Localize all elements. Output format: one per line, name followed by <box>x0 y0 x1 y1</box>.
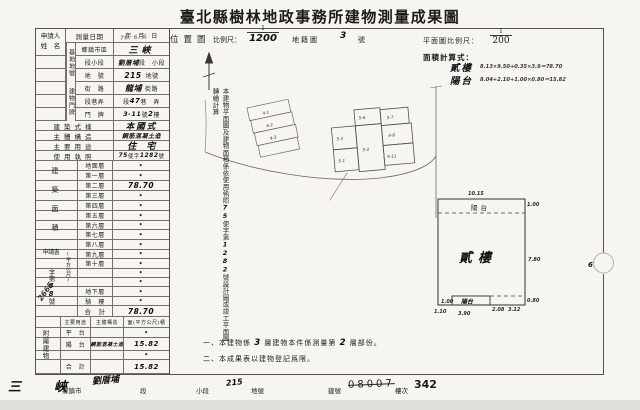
floor-label: 第七層 <box>78 230 113 239</box>
survey-date-label: 測量日期 <box>66 29 114 42</box>
road-handwritten-number: 6 <box>588 261 593 269</box>
floor-label <box>78 278 113 286</box>
map-scale-label: 比例尺： <box>213 35 241 45</box>
cadastral-sheet-suffix: 號 <box>358 35 365 45</box>
usage-value: 住 宅 <box>114 141 169 150</box>
parcel-label: 5-6 <box>358 115 366 121</box>
calc-row1-name: 貳樓 <box>450 60 473 74</box>
floor-label: 第四層 <box>78 201 113 210</box>
strip-printed-2: 使字第 <box>221 220 229 240</box>
style-value: 本國式 <box>114 121 169 130</box>
strip-handwritten-2: 1282 <box>221 241 229 274</box>
floor-value: • <box>113 221 169 229</box>
parcel-label: 5-1 <box>338 158 346 164</box>
annex-row-structure <box>91 328 124 337</box>
annex-row-structure: 鋼筋混凝土造 <box>91 338 124 350</box>
structure-label: 主體構造 <box>36 131 114 140</box>
calc-row2-formula: 8.04+2.10+1.00×0.80＝15.82 <box>480 76 566 83</box>
floor-value: • <box>113 287 169 296</box>
application-label: 申請書 <box>38 247 64 256</box>
floor-value: • <box>113 269 169 277</box>
dim-right-mid: 7.80 <box>528 257 541 263</box>
note-1-handwritten-level: 2 <box>340 338 347 348</box>
annex-row-label: 平 台 <box>61 328 91 337</box>
floor-label: 地下層 <box>78 287 113 296</box>
road-circle-mark <box>594 253 614 273</box>
dim-right-top: 1.00 <box>527 202 540 208</box>
door-street-value: 龍埔 街路 <box>114 82 169 94</box>
parcel-label: 5-3 <box>336 136 344 142</box>
strip-printed-1: 本建物平面圖及建物面積係依使用執照 <box>221 88 229 204</box>
annex-header-usage: 主要用途 <box>61 317 91 327</box>
door-number-value: 3-11 號 2 樓 <box>114 108 169 120</box>
map-scale-fraction: 1 1200 <box>248 26 278 44</box>
plan-scale-label: 平面圖比例尺： <box>423 36 479 46</box>
footer-section-label: 段 <box>140 385 147 395</box>
floor-value: • <box>113 201 169 210</box>
floor-value: • <box>113 240 169 249</box>
parcel-label: 4-3 <box>269 134 277 140</box>
site-parcel-value: 215 地號 <box>114 69 169 81</box>
floor-value: • <box>113 161 169 170</box>
annex-header-area: 面(平方公尺)積 <box>124 317 169 327</box>
door-number-label: 門 牌 <box>76 108 114 120</box>
parcel-label: 4-1 <box>262 109 270 115</box>
annex-header-structure: 主體構造 <box>91 317 124 327</box>
floor-value: • <box>113 259 169 268</box>
strip-handwritten-1: 75 <box>221 204 229 221</box>
site-parcel-label: 地 號 <box>76 69 114 81</box>
floor-value: • <box>113 230 169 239</box>
site-group-label: 基地地號 <box>66 43 76 82</box>
dim-top: 10.15 <box>468 191 484 197</box>
application-number-block: 申請書 字第88號 <box>38 247 64 316</box>
floor-plan: 陽台 陽台 貳樓 10.15 1.00 7.80 0.80 1.10 3.90 … <box>434 191 541 317</box>
site-section-value: 劉厝埔 段 小段 <box>114 56 169 68</box>
parcel-label: 4-8 <box>388 132 396 138</box>
floor-label: 第八層 <box>78 240 113 249</box>
annex-total-structure <box>91 360 124 373</box>
floor-label: 騎 樓 <box>78 297 113 305</box>
balcony-bottom-label: 陽台 <box>461 298 474 306</box>
floor-value: • <box>113 250 169 258</box>
location-map-label: 位置圖 <box>170 33 211 45</box>
floor-value: • <box>113 171 169 180</box>
location-map-sketch: 4-1 4-2 4-3 5-6 5-7 5-3 4-8 5-2 5-1 <box>205 86 442 218</box>
site-township-label: 鄉鎮市區 <box>76 43 114 55</box>
site-township-value: 三峽 <box>114 43 169 55</box>
dim-right-bottom: 0.80 <box>527 298 540 304</box>
floor-label: 第九層 <box>78 250 113 258</box>
footer-section-handwritten: 劉厝埔 <box>91 372 119 387</box>
map-parcel-cluster-center: 5-6 5-7 5-3 4-8 5-2 5-1 5-11 <box>322 105 417 200</box>
parcel-label: 5-7 <box>386 114 394 120</box>
annex-row-label <box>61 351 91 359</box>
map-boundary <box>205 152 436 179</box>
door-group-label: 建物門牌 <box>66 82 76 121</box>
annex-row-label: 陽 台 <box>61 338 91 350</box>
site-section-label: 段小段 <box>76 56 114 68</box>
footer-building-number-struck: 08007 <box>348 378 395 391</box>
floor-label: 第三層 <box>78 191 113 200</box>
footer-parcel-handwritten: 215 <box>226 377 244 388</box>
annex-row-area: • <box>124 328 169 337</box>
parcel-label: 5-2 <box>362 147 370 153</box>
dim-bottom-4: 3.12 <box>508 307 521 313</box>
door-street-label: 街 路 <box>76 82 114 94</box>
door-lane-label: 段巷弄 <box>76 95 114 107</box>
north-arrow-icon <box>203 53 215 90</box>
scan-edge-shadow <box>0 400 640 410</box>
floor-label: 第二層 <box>78 181 113 190</box>
floor-plan-main-label: 貳樓 <box>458 250 497 266</box>
note-1: 一、本建物係 3 層建物本件係測量第 2 層部份。 <box>203 338 483 348</box>
dim-inner: 1.00 <box>441 299 454 305</box>
calc-row2-name: 陽台 <box>450 73 473 87</box>
area-total-label: 合 計 <box>78 306 113 316</box>
area-unit-label: (平方公尺) <box>65 251 72 307</box>
style-label: 建築式樣 <box>36 121 114 130</box>
annex-group-label: 附屬建物 <box>40 330 50 372</box>
annex-row-area: • <box>124 351 169 359</box>
parcel-label: 5-11 <box>387 153 397 159</box>
footer-building-label: 建號 <box>328 385 341 395</box>
footer-parcel-label: 地號 <box>251 385 264 395</box>
parcel-label: 4-2 <box>266 122 274 128</box>
annex-total-area: 15.82 <box>124 360 169 373</box>
structure-value: 鋼筋混凝土造 <box>114 131 169 140</box>
floor-label: 第一層 <box>78 171 113 180</box>
area-total-value: 78.70 <box>113 306 169 316</box>
applicant-name-label: 申請人姓 名 <box>36 29 66 56</box>
door-lane-value: 段 47 巷 弄 <box>114 95 169 107</box>
dim-bottom-2: 3.90 <box>458 311 471 317</box>
cadastral-sheet-number: 3 <box>340 31 346 41</box>
map-scale-denominator: 1200 <box>247 32 279 44</box>
note-2: 二、本成果表以建物登記爲限。 <box>203 354 315 364</box>
survey-date-handwritten: 76. 6. 6 <box>120 34 148 41</box>
floor-value: • <box>113 278 169 286</box>
floor-value-second-floor: 78.70 <box>113 181 169 190</box>
footer-subsection-label: 小段 <box>196 385 209 395</box>
floor-value: • <box>113 211 169 220</box>
annex-row-structure <box>91 351 124 359</box>
building-data-table: 測量日期 年 月 日 76. 6. 6 鄉鎮市區 三峽 段小段 劉厝埔 段 小段… <box>35 28 170 375</box>
floor-label: 第五層 <box>78 211 113 220</box>
floor-label: 第十層 <box>78 259 113 268</box>
annex-row-area: 15.82 <box>124 338 169 350</box>
floor-value: • <box>113 297 169 305</box>
footer-floor-number: 342 <box>414 378 437 391</box>
license-value: 75 使字 1282 號 <box>114 151 169 160</box>
floor-value: • <box>113 191 169 200</box>
footer-township-label: 鄉鎮市 <box>62 385 82 395</box>
annex-total-label: 合 計 <box>61 360 91 373</box>
floor-label: 第六層 <box>78 221 113 229</box>
plan-scale-fraction: 1 200 <box>488 29 514 46</box>
floor-label: 地面層 <box>78 161 113 170</box>
license-label: 使用執照 <box>36 151 114 160</box>
usage-label: 主要用途 <box>36 141 114 150</box>
balcony-top-label: 陽台 <box>471 203 490 212</box>
dim-bottom-3: 2.08 <box>492 307 505 313</box>
map-parcel-cluster-left: 4-1 4-2 4-3 <box>247 99 301 158</box>
cadastral-sheet-label: 地籍圖 <box>292 35 319 45</box>
survey-date-value: 年 月 日 76. 6. 6 <box>114 29 169 42</box>
scanned-survey-document: 6 4-1 4-2 4-3 <box>0 0 640 410</box>
document-title: 臺北縣樹林地政事務所建物測量成果圖 <box>0 6 640 27</box>
note-1-handwritten-floors: 3 <box>254 338 261 348</box>
certification-strip: 本建物平面圖及建物面積係依使用執照75使字第1282號設計圖或竣工平面圖轉繪計算 <box>216 88 230 342</box>
plan-scale-denominator: 200 <box>490 35 511 46</box>
dim-bottom-1: 1.10 <box>434 309 447 315</box>
calc-row1-formula: 8.13×9.50+0.35×3.9＝78.70 <box>480 63 562 70</box>
floor-label <box>78 269 113 277</box>
footer-floor-label: 樓次 <box>395 385 408 395</box>
